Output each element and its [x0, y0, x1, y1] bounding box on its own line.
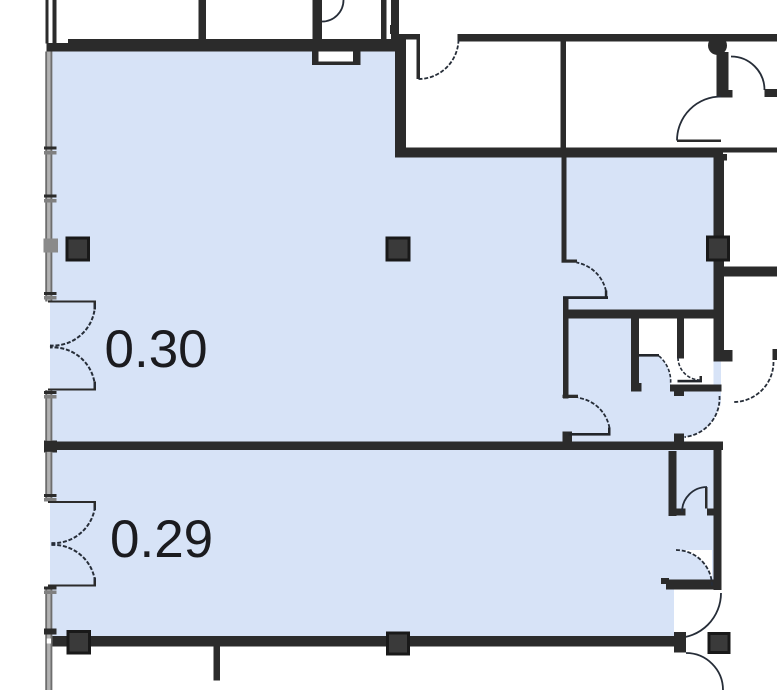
svg-text:0.29: 0.29: [110, 510, 213, 569]
svg-text:0.30: 0.30: [105, 320, 208, 379]
